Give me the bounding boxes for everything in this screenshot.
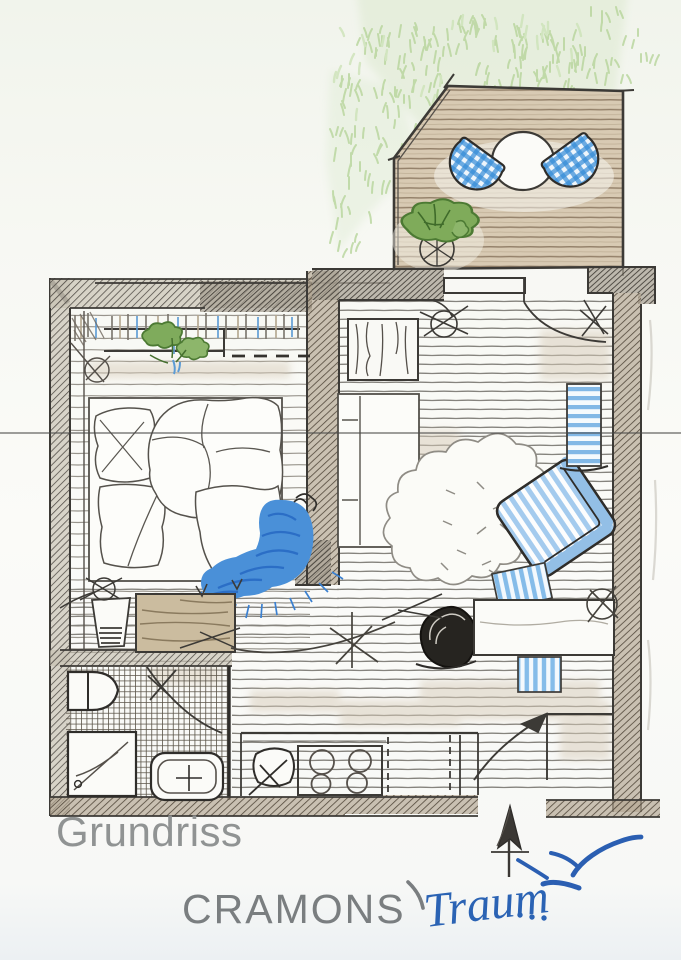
svg-text:CRAMONS: CRAMONS (182, 886, 406, 932)
svg-text:Grundriss: Grundriss (56, 808, 243, 855)
